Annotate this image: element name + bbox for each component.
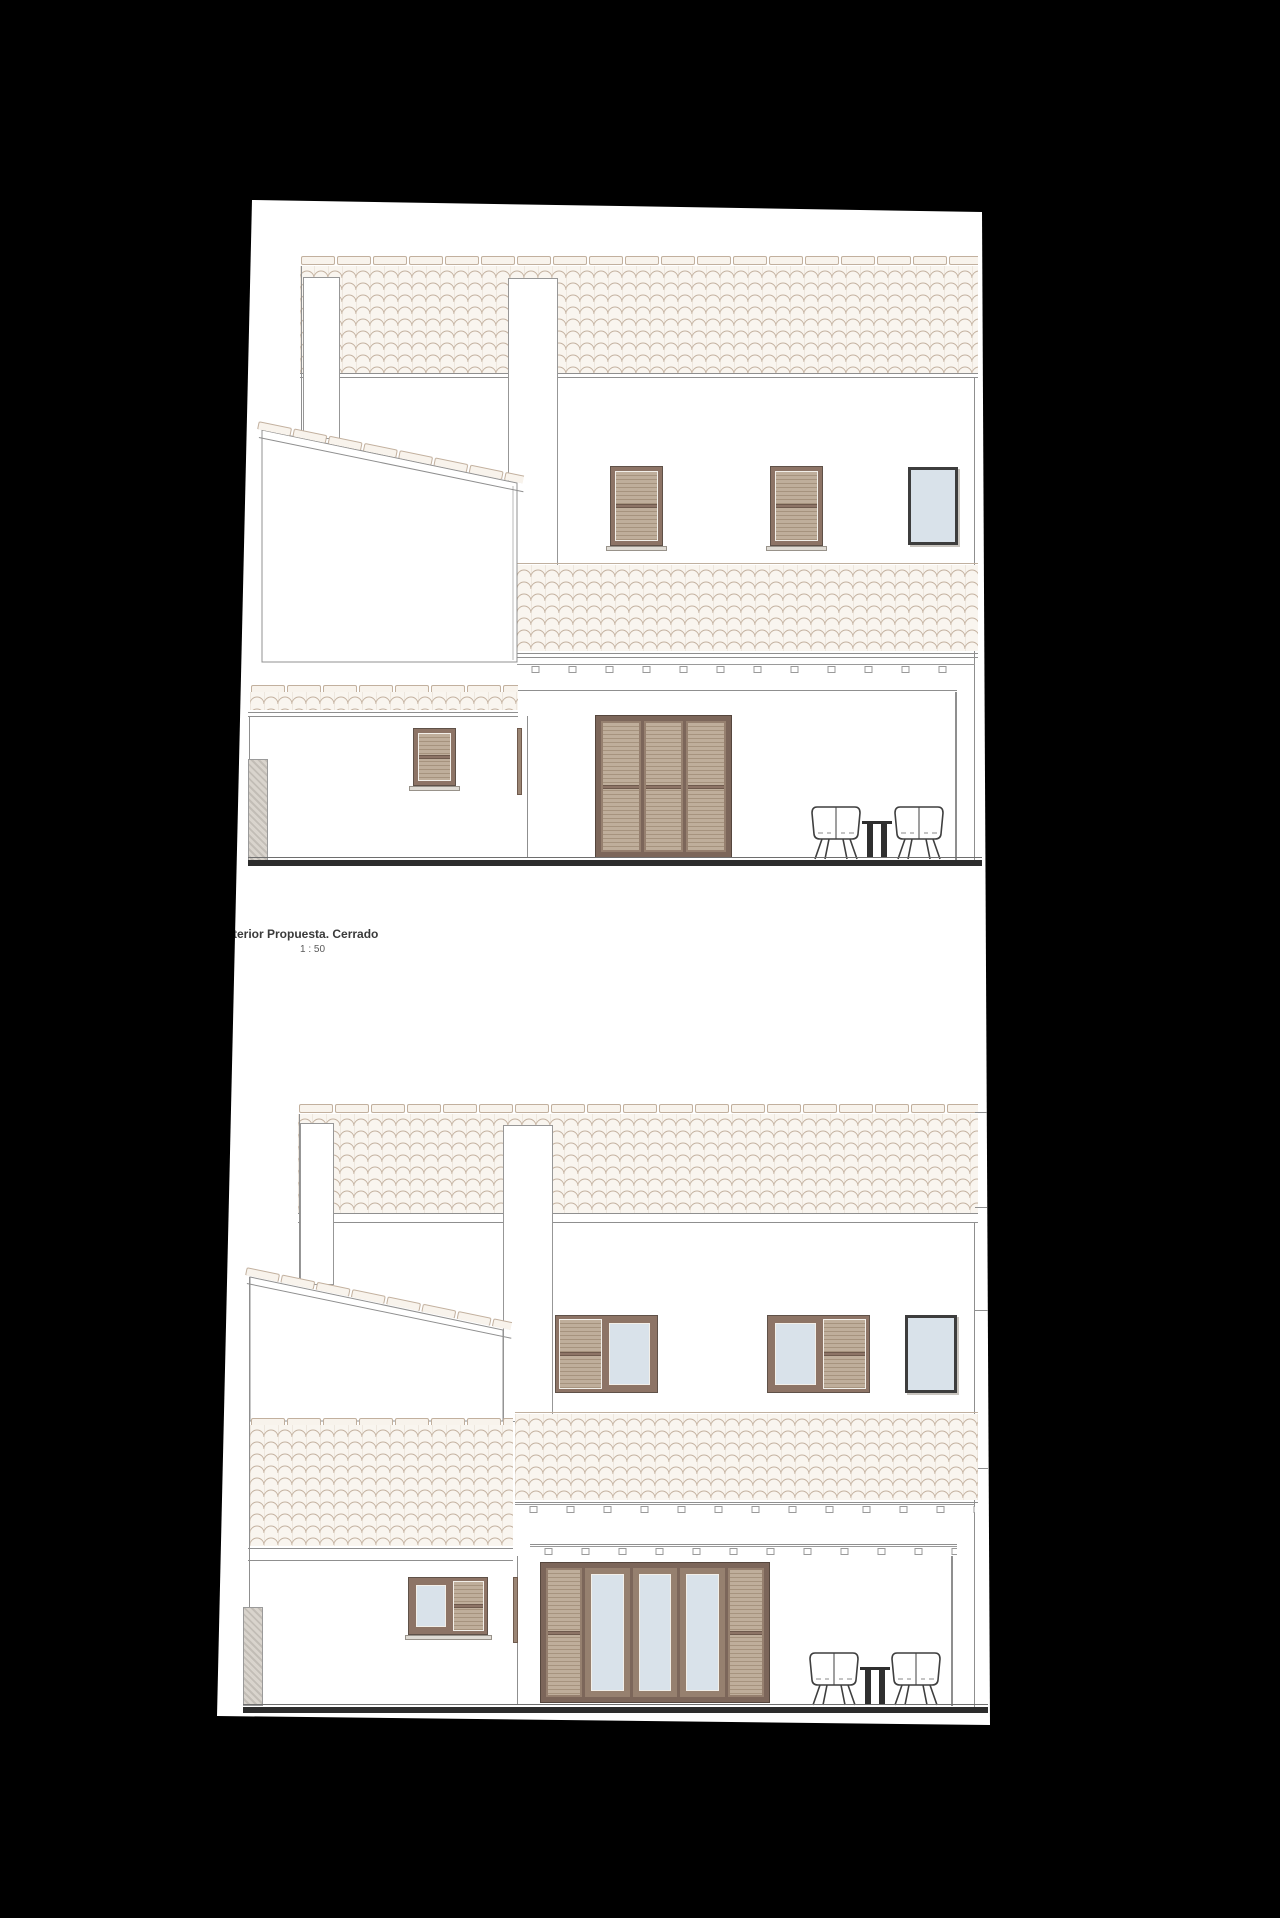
main-roof-tiles: [300, 266, 978, 373]
window-sill: [405, 1635, 492, 1640]
margin-tick: [975, 1207, 988, 1208]
door-leaf-glazed: [585, 1568, 629, 1697]
shutter-midrail: [824, 1352, 865, 1356]
shutter-midrail: [616, 504, 657, 508]
porch-post: [955, 692, 957, 860]
tub-chair: [810, 806, 862, 860]
annex-wall: [256, 424, 522, 669]
door-leaf-louvered: [686, 721, 726, 852]
margin-tick: [975, 1310, 988, 1311]
annex2-roof-tiles: [250, 1425, 513, 1546]
drawing-scale: 1 : 50: [300, 944, 325, 955]
ridge-cap-row: [300, 255, 978, 266]
tier2-ridge-line: [517, 563, 978, 564]
glazed-window: [905, 1315, 957, 1393]
corner-shutter-edge: [517, 728, 522, 795]
shutter-window: [610, 466, 663, 546]
door-leaf-louvered: [601, 721, 641, 852]
open-shutter-leaf: [559, 1319, 602, 1389]
annex2-eave-line: [248, 1548, 513, 1549]
glass: [591, 1574, 623, 1691]
tier2-eave-line: [517, 653, 978, 654]
door-leaf-louvered: [546, 1568, 582, 1697]
annex2-eave-line: [248, 716, 518, 717]
glass: [609, 1323, 650, 1385]
door-midrail: [548, 1631, 580, 1635]
door-leaf-glazed: [633, 1568, 677, 1697]
door-leaf-louvered: [644, 721, 684, 852]
annex2-roof-tiles: [250, 692, 518, 710]
shutter-louvers: [775, 471, 818, 541]
door-midrail: [730, 1631, 762, 1635]
porch-edge-left: [527, 716, 528, 858]
five-leaf-door: [540, 1562, 770, 1703]
hatched-pillar: [243, 1607, 263, 1706]
annex2-eave-line: [248, 712, 518, 713]
small-shutter-window: [413, 728, 456, 786]
tub-chair: [890, 1652, 942, 1706]
ground-line-heavy: [243, 1707, 988, 1713]
glass: [686, 1574, 718, 1691]
tier2-eave-line: [517, 657, 978, 658]
open-shutter-leaf: [453, 1581, 485, 1631]
glazed-casement: [412, 1581, 450, 1631]
door-midrail: [603, 785, 639, 789]
annex2-ridge-caps: [250, 1417, 513, 1425]
porch-beam-line: [530, 1544, 957, 1545]
eave-bracket-row: [515, 1504, 975, 1514]
side-table: [860, 1667, 890, 1704]
tier2-ridge-line: [515, 1412, 978, 1413]
shutter-glass-window: [555, 1315, 658, 1393]
glass-shutter-window: [767, 1315, 870, 1393]
eave-line: [298, 1213, 978, 1214]
shutter-window: [770, 466, 823, 546]
open-shutter-leaf: [823, 1319, 866, 1389]
glazed-window: [908, 467, 958, 545]
porch-bracket-row: [530, 1546, 957, 1556]
wall-edge-left: [301, 266, 302, 430]
drawing-title: terior Propuesta. Cerrado: [233, 927, 378, 941]
ground-line: [243, 1704, 988, 1705]
porch-beam-line: [517, 690, 957, 691]
shutter-louvers: [615, 471, 658, 541]
glass: [416, 1585, 446, 1627]
tub-chair: [808, 1652, 860, 1706]
glass: [639, 1574, 671, 1691]
eave-line: [298, 1222, 978, 1223]
main-roof-tiles: [298, 1114, 978, 1213]
shutter-midrail: [454, 1604, 484, 1608]
drawing-viewport: terior Propuesta. Cerrado 1 : 50: [0, 0, 1280, 1918]
ridge-cap-row: [298, 1103, 978, 1114]
shutter-midrail: [560, 1352, 601, 1356]
side-table: [862, 821, 892, 858]
corner-shutter-edge: [513, 1577, 518, 1643]
ground-line: [248, 857, 982, 858]
window-sill: [766, 546, 827, 551]
tier2-roof-tiles: [517, 565, 978, 651]
small-glass-shutter-window: [408, 1577, 488, 1635]
ground-line-heavy: [248, 860, 982, 866]
glazed-casement: [605, 1319, 654, 1389]
wall-edge-left: [299, 1114, 300, 1278]
margin-tick: [975, 1112, 988, 1113]
eave-line: [300, 373, 978, 374]
tub-chair: [893, 806, 945, 860]
chimney: [303, 277, 340, 439]
paper-sheet: terior Propuesta. Cerrado 1 : 50: [0, 0, 1280, 1918]
shutter-louvers: [418, 733, 451, 781]
door-midrail: [646, 785, 682, 789]
tier2-roof-tiles: [515, 1414, 978, 1500]
window-sill: [606, 546, 667, 551]
chimney: [300, 1123, 334, 1285]
eave-line: [300, 377, 978, 378]
glass: [775, 1323, 816, 1385]
window-sill: [409, 786, 460, 791]
three-leaf-shutter-door: [595, 715, 732, 858]
door-midrail: [688, 785, 724, 789]
eave-bracket-row: [517, 664, 975, 674]
hatched-pillar: [248, 759, 268, 863]
shutter-midrail: [419, 755, 450, 759]
door-leaf-louvered: [728, 1568, 764, 1697]
tier2-eave-line: [515, 1502, 978, 1503]
porch-post: [951, 1556, 953, 1706]
annex2-wall-edge: [249, 716, 250, 760]
annex2-ridge-caps: [250, 684, 518, 692]
shutter-midrail: [776, 504, 817, 508]
stair-tower: [503, 1125, 553, 1422]
glazed-casement: [771, 1319, 820, 1389]
annex2-eave-line: [248, 1560, 513, 1561]
door-leaf-glazed: [680, 1568, 724, 1697]
